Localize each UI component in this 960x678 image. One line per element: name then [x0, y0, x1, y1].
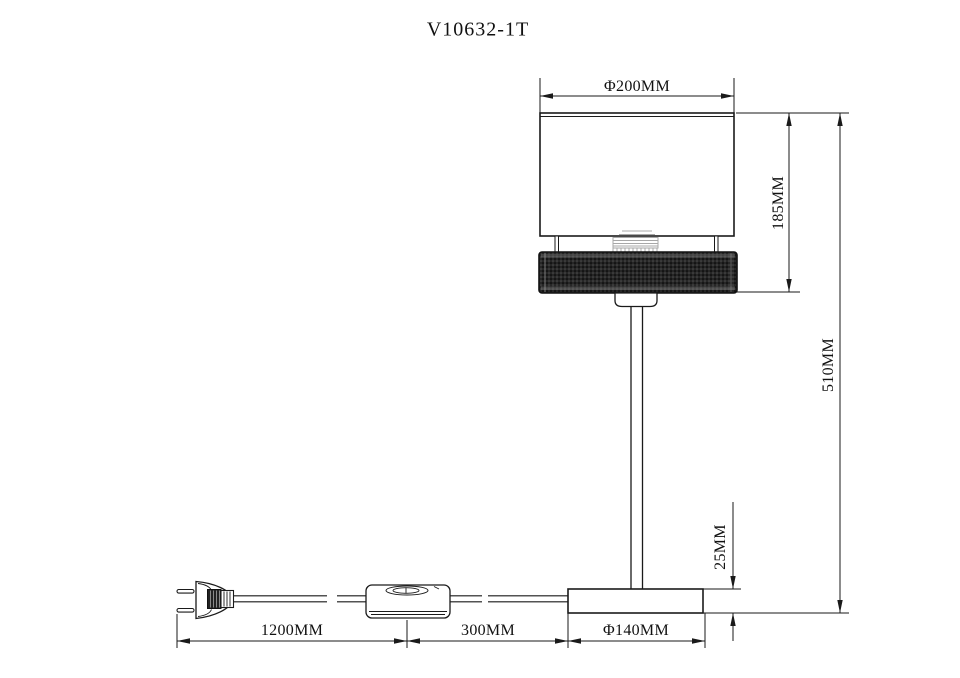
dim-label-overall-height: 510MM [820, 338, 838, 392]
dim-label-shade-diameter: Φ200MM [604, 78, 670, 96]
diffuser-band [539, 252, 737, 293]
technical-drawing-page: V10632-1T Φ200MM 185MM 510MM 25MM 1200MM… [0, 0, 960, 678]
dim-label-base-height: 25MM [712, 524, 730, 570]
lamp-stem [631, 307, 643, 590]
extension-lines [177, 78, 849, 648]
power-plug [177, 582, 234, 619]
lamp-shade [540, 113, 734, 236]
lamp-drawing [0, 0, 960, 678]
dimension-arrowheads [177, 93, 843, 643]
band-collar [615, 293, 657, 307]
inline-switch [366, 585, 450, 618]
dim-label-base-diameter: Φ140MM [603, 622, 669, 640]
dimension-lines [177, 96, 840, 641]
dim-label-cord-length: 1200MM [261, 622, 323, 640]
drawing-title: V10632-1T [427, 19, 529, 42]
dim-label-shade-height: 185MM [770, 176, 788, 230]
bulb-socket [613, 231, 658, 253]
lamp-base [568, 589, 703, 613]
dim-label-switch-to-base: 300MM [461, 622, 515, 640]
